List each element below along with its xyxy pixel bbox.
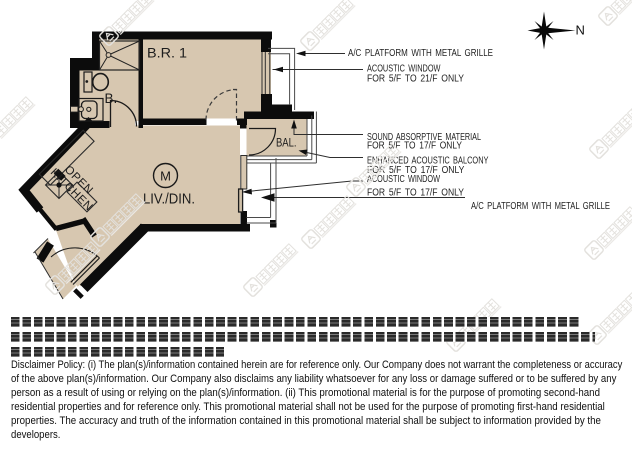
- svg-text:ACOUSTIC WINDOW: ACOUSTIC WINDOW: [367, 174, 441, 185]
- svg-text:FOR 5/F TO 17/F ONLY: FOR 5/F TO 17/F ONLY: [367, 141, 462, 152]
- svg-text:B.: B.: [105, 91, 118, 106]
- svg-text:FOR 5/F TO 21/F ONLY: FOR 5/F TO 21/F ONLY: [367, 74, 464, 85]
- svg-text:B.R. 1: B.R. 1: [147, 46, 187, 61]
- svg-text:N: N: [576, 23, 585, 38]
- svg-text:M: M: [160, 169, 171, 184]
- svg-text:A/C PLATFORM WITH METAL GRILLE: A/C PLATFORM WITH METAL GRILLE: [348, 48, 493, 59]
- svg-text:LIV./DIN.: LIV./DIN.: [143, 192, 195, 208]
- svg-text:FOR 5/F TO 17/F ONLY: FOR 5/F TO 17/F ONLY: [367, 188, 464, 199]
- svg-text:BAL.: BAL.: [276, 136, 297, 150]
- svg-text:A/C PLATFORM WITH METAL GRILLE: A/C PLATFORM WITH METAL GRILLE: [471, 201, 610, 212]
